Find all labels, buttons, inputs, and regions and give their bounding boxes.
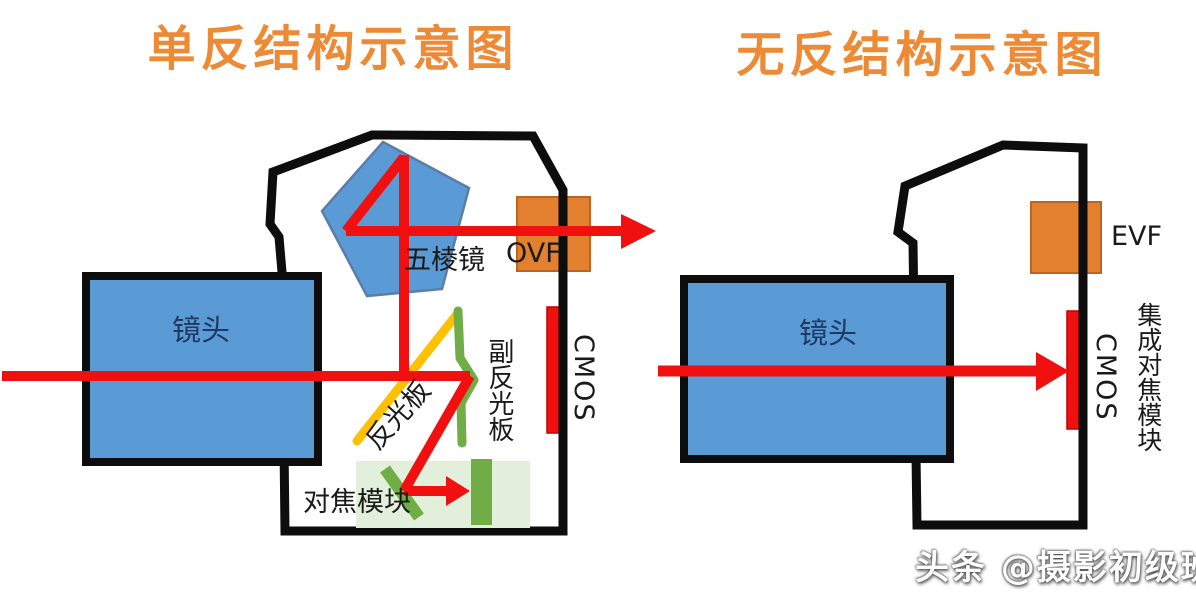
integrated-af-label: 集成对焦模块 [1133,302,1162,452]
mirrorless-cmos-label: CMOS [1090,333,1121,422]
mirrorless-lens-label: 镜头 [778,317,878,350]
mirrorless-title: 无反结构示意图 [722,28,1122,83]
dslr-lens-label: 镜头 [151,314,251,347]
dslr-exit-arrowhead [621,214,656,249]
evf-box [1031,202,1101,273]
af-module-label: 对焦模块 [303,487,411,518]
pentaprism-label: 五棱镜 [404,245,485,276]
ovf-label: OVF [506,238,561,269]
mirrorless-arrowhead [1036,352,1069,391]
dslr-cmos-label: CMOS [568,334,599,423]
secondary-mirror-label: 副反光板 [483,338,513,442]
dslr-lens [86,276,318,462]
camera-structure-diagram: 单反结构示意图 无反结构示意图 镜头 五棱镜 OVF CMOS 反光板 副反光板… [0,0,1196,599]
dslr-title: 单反结构示意图 [128,22,538,77]
diagram-canvas [0,0,1196,599]
af-sensor-bar [471,459,492,525]
watermark: 头条 @摄影初级班 [915,549,1196,588]
evf-label: EVF [1111,221,1162,252]
